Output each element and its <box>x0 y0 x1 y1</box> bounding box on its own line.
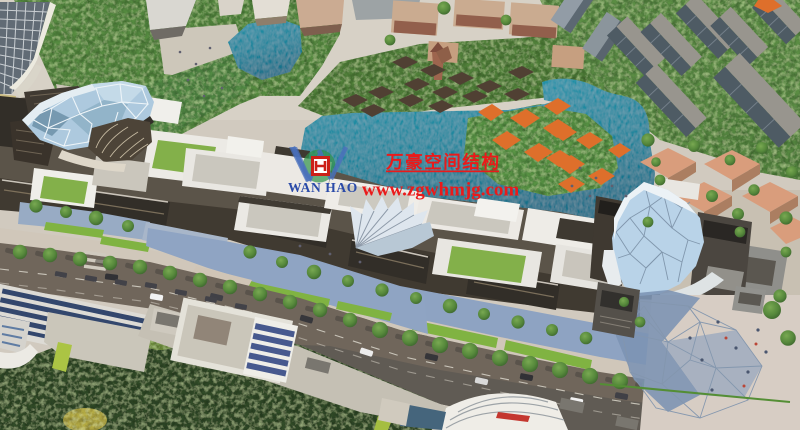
svg-text:万豪空间结构: 万豪空间结构 <box>385 152 501 172</box>
svg-text:www.zgwhmjg.com: www.zgwhmjg.com <box>362 180 519 201</box>
svg-text:WAN HAO: WAN HAO <box>288 180 358 195</box>
